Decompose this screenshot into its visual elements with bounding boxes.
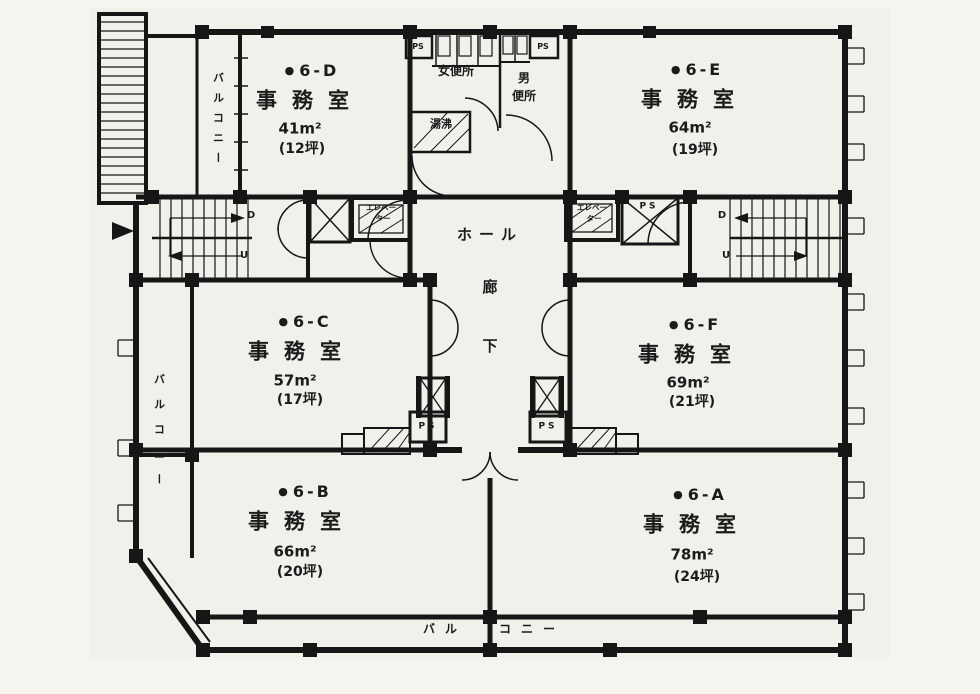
room-6a-tsubo: (24坪) [674, 570, 720, 584]
room-6d-area: 41m² [278, 122, 321, 137]
room-6c-type: 事務室 [248, 342, 356, 363]
mens-toilet-label-line1: 男 [518, 72, 530, 84]
room-6c-area: 57m² [273, 374, 316, 389]
room-6d-tsubo: (12坪) [279, 142, 325, 156]
balcony-label-bottom-right: コニー [499, 623, 565, 635]
ps-label-top-left: PS [412, 43, 424, 51]
elevator-right-label-line1: エレベー [577, 203, 607, 214]
stair-up-label-right: U [722, 251, 730, 261]
bullet-icon: ● [278, 315, 288, 328]
ps-label-top-right: PS [537, 43, 549, 51]
ps-label-corridor-left: PS [418, 423, 437, 432]
corridor-label: 廊下 [482, 279, 497, 397]
room-6c-label: ●6-C [278, 314, 331, 330]
room-6c-tsubo: (17坪) [277, 393, 323, 407]
womens-toilet-label: 女便所 [438, 65, 474, 77]
mens-toilet-label-line2: 便所 [512, 90, 536, 102]
room-6d-type: 事務室 [256, 91, 364, 112]
room-6b-tsubo: (20坪) [277, 565, 323, 579]
elevator-left-label-line2: ター [376, 214, 391, 225]
stair-down-label-left: D [247, 211, 255, 221]
stair-up-label-left: U [240, 251, 248, 261]
balcony-label-bottom-left: バル [423, 623, 467, 635]
balcony-label-left-middle: バルコニー [154, 374, 165, 499]
elevator-left-label-line1: エレベー [366, 203, 396, 214]
room-6b-area: 66m² [273, 545, 316, 560]
room-6e-tsubo: (19坪) [672, 143, 718, 157]
room-6e-label: ●6-E [671, 62, 723, 78]
bullet-icon: ● [673, 488, 683, 501]
bullet-icon: ● [278, 485, 288, 498]
room-6b-type: 事務室 [248, 512, 356, 533]
room-6a-type: 事務室 [643, 515, 751, 536]
bullet-icon: ● [285, 64, 295, 77]
elevator-right-label-line2: ター [587, 214, 602, 225]
room-6e-area: 64m² [668, 121, 711, 136]
room-6e-type: 事務室 [641, 90, 749, 111]
room-6f-label: ●6-F [669, 317, 721, 333]
room-6f-tsubo: (21坪) [669, 395, 715, 409]
balcony-label-top-left: バルコニー [213, 72, 224, 172]
floor-plan: ●6-D 事務室 41m² (12坪) ●6-E 事務室 64m² (19坪) … [0, 0, 980, 694]
room-6f-type: 事務室 [638, 345, 746, 366]
hot-water-label: 湯沸 [430, 119, 452, 130]
room-6b-label: ●6-B [278, 484, 332, 500]
room-6a-label: ●6-A [673, 487, 727, 503]
room-6d-label: ●6-D [285, 63, 340, 79]
room-6a-area: 78m² [670, 548, 713, 563]
ps-label-corridor-right: PS [538, 423, 557, 432]
hall-label: ホール [457, 228, 523, 243]
bullet-icon: ● [671, 63, 681, 76]
ps-label-right-shaft: PS [639, 203, 658, 212]
bullet-icon: ● [669, 318, 679, 331]
room-6f-area: 69m² [666, 376, 709, 391]
stair-down-label-right: D [718, 211, 726, 221]
